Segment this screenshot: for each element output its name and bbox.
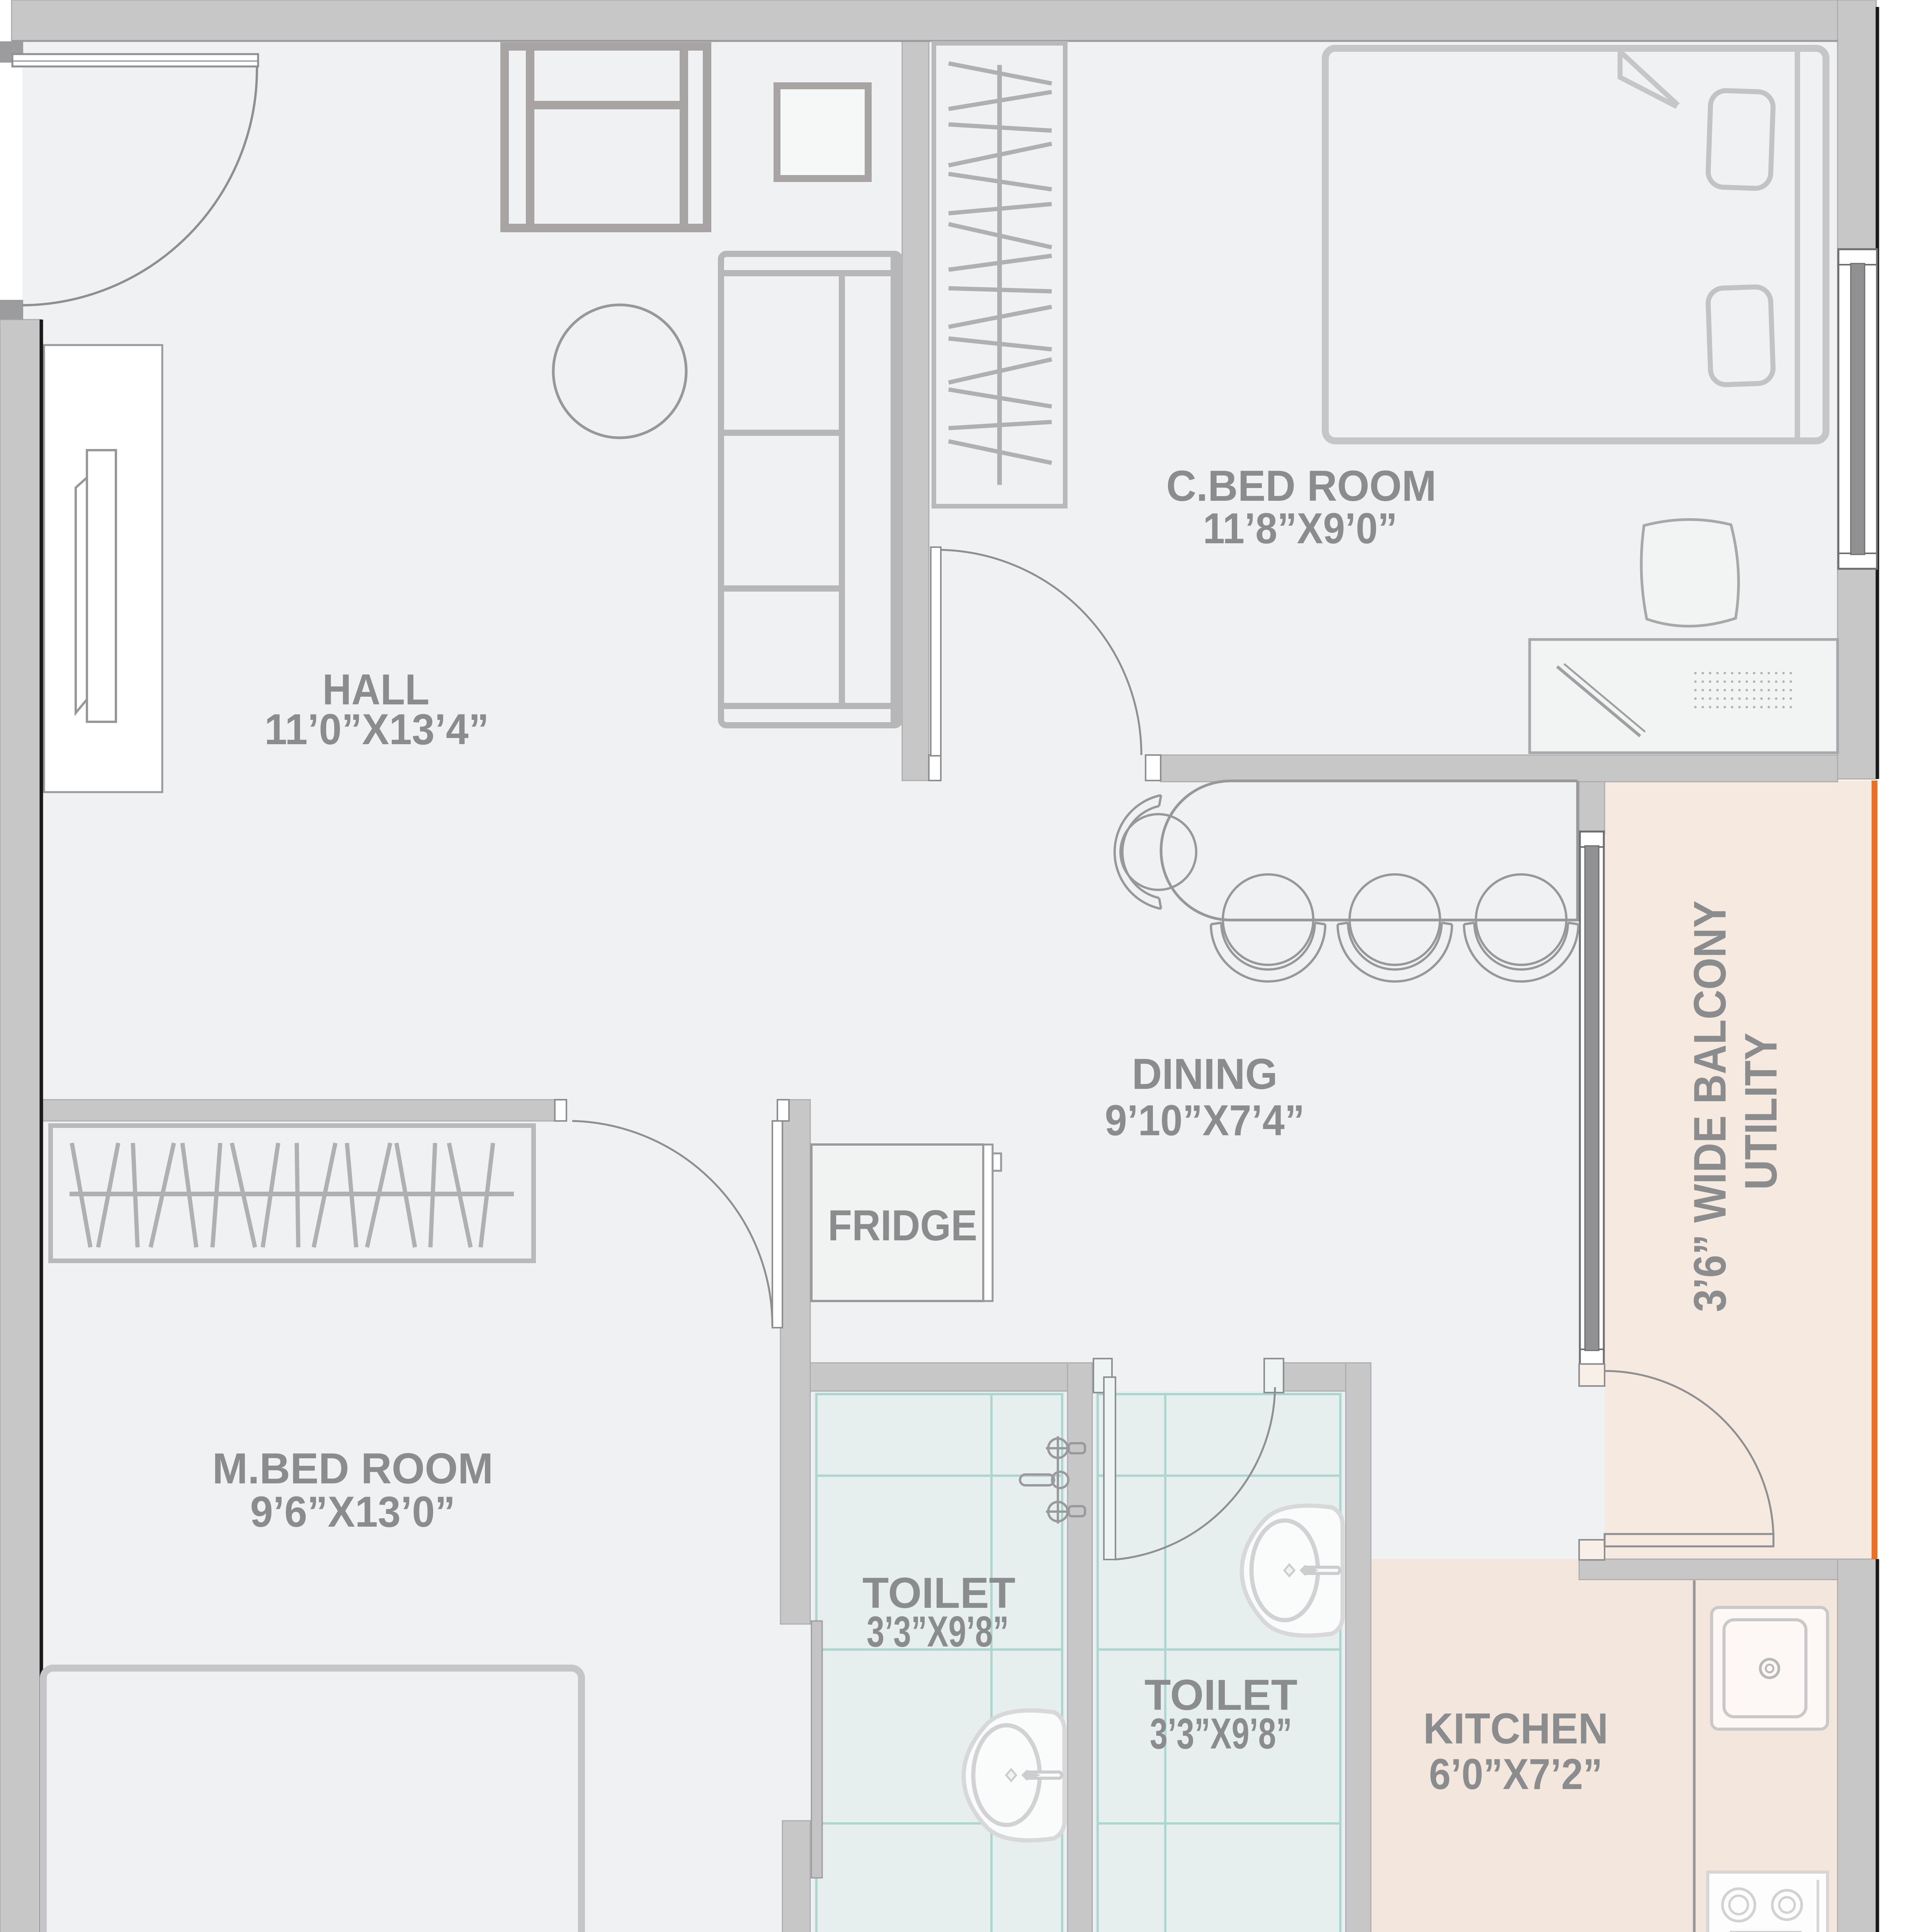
svg-text:3’3”X9’8”: 3’3”X9’8” <box>867 1607 1009 1656</box>
svg-text:C.BED ROOM: C.BED ROOM <box>1166 462 1437 510</box>
svg-text:9’10”X7’4”: 9’10”X7’4” <box>1105 1096 1305 1145</box>
svg-text:9’6”X13’0”: 9’6”X13’0” <box>250 1488 456 1536</box>
svg-text:6’0”X7’2”: 6’0”X7’2” <box>1429 1750 1603 1798</box>
svg-text:FRIDGE: FRIDGE <box>828 1201 978 1250</box>
svg-text:DINING: DINING <box>1132 1050 1278 1098</box>
svg-text:11’0”X13’4”: 11’0”X13’4” <box>265 705 489 753</box>
svg-text:UTILITY: UTILITY <box>1736 1033 1787 1190</box>
svg-text:M.BED ROOM: M.BED ROOM <box>213 1444 493 1493</box>
svg-text:3’3”X9’8”: 3’3”X9’8” <box>1150 1709 1292 1758</box>
svg-text:11’8”X9’0”: 11’8”X9’0” <box>1203 504 1398 553</box>
svg-text:3’6” WIDE BALCONY: 3’6” WIDE BALCONY <box>1685 901 1736 1312</box>
svg-text:KITCHEN: KITCHEN <box>1423 1704 1608 1753</box>
